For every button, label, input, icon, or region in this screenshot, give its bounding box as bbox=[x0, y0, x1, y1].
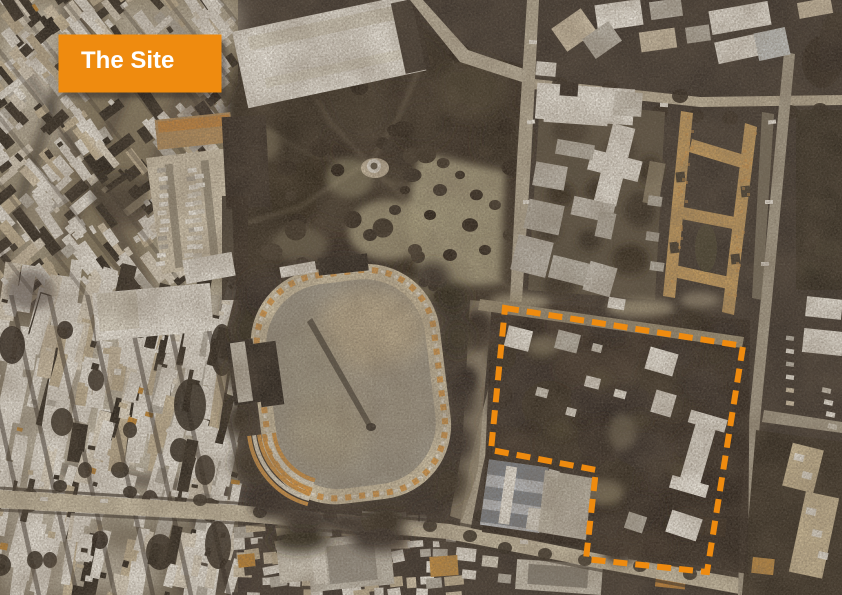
svg-text:The Site: The Site bbox=[81, 47, 174, 74]
